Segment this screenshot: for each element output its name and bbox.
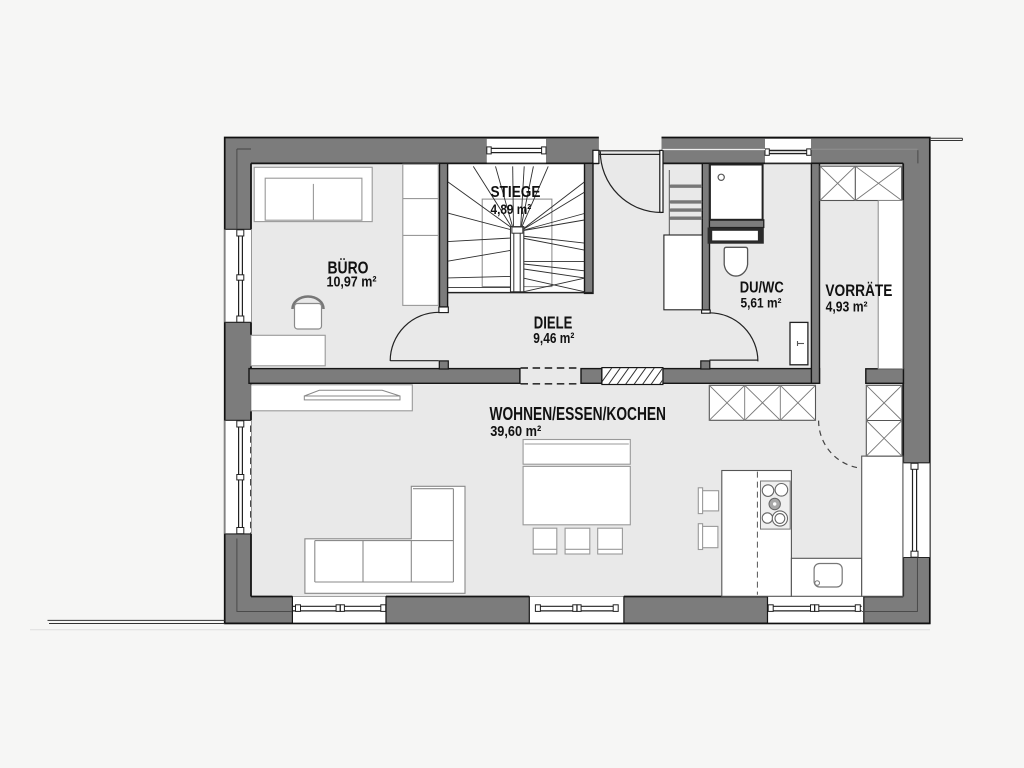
svg-text:4,93 m²: 4,93 m² — [826, 300, 868, 316]
svg-text:10,97 m²: 10,97 m² — [327, 274, 377, 291]
svg-text:VORRÄTE: VORRÄTE — [825, 282, 892, 300]
svg-text:5,61 m²: 5,61 m² — [741, 295, 782, 311]
svg-text:4,89 m²: 4,89 m² — [491, 202, 532, 218]
svg-text:WOHNEN/ESSEN/KOCHEN: WOHNEN/ESSEN/KOCHEN — [490, 404, 667, 424]
svg-text:39,60 m²: 39,60 m² — [490, 423, 541, 440]
svg-text:9,46 m²: 9,46 m² — [533, 330, 574, 347]
svg-text:STIEGE: STIEGE — [491, 184, 541, 201]
